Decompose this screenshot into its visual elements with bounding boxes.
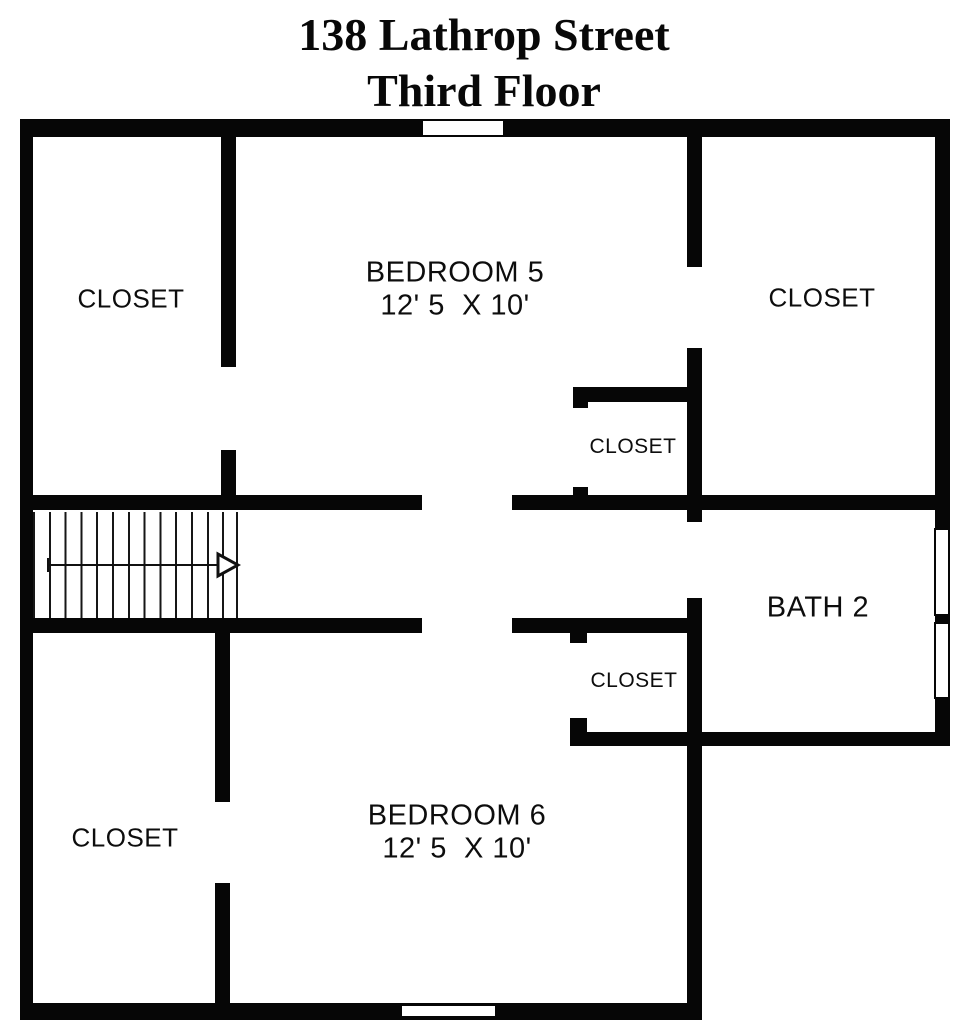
window-marker-top (421, 119, 505, 137)
room-label-closet-mid-lower: CLOSET (590, 669, 677, 693)
room-label-bedroom5: BEDROOM 5 (366, 257, 545, 290)
floor-plan: 138 Lathrop Street Third Floor CLOSET BE… (0, 0, 968, 1030)
room-label-bath2: BATH 2 (767, 592, 869, 625)
wall-divider-mid (687, 348, 702, 495)
window-right-lower (934, 622, 950, 699)
wall-closet-upper-left-a (221, 137, 236, 367)
wall-divider-upper (687, 137, 702, 267)
wall-bath-bottom (570, 732, 950, 746)
wall-outer-left (20, 119, 33, 1020)
room-label-bedroom6: BEDROOM 6 (368, 800, 547, 833)
wall-closet-mid-lower-stub-b (570, 718, 587, 732)
room-dims-bedroom6: 12' 5 X 10' (382, 833, 531, 866)
wall-outer-bottom (20, 1003, 702, 1020)
plan-title-line2: Third Floor (0, 68, 968, 114)
stairs-direction-arrow-head (215, 551, 241, 579)
wall-hall-top-right (512, 495, 950, 510)
room-label-closet-upper-right: CLOSET (768, 283, 875, 314)
wall-closet-mid-upper-stub-a (573, 387, 588, 408)
room-dims-bedroom5: 12' 5 X 10' (380, 290, 529, 323)
wall-hall-bottom-right (512, 618, 687, 633)
wall-divider-lower (687, 598, 702, 1003)
wall-hall-top-left (20, 495, 422, 510)
wall-closet-mid-upper-stub-b (573, 487, 588, 495)
window-marker-bottom (400, 1004, 497, 1018)
wall-closet-upper-left-b (221, 450, 236, 495)
wall-closet-mid-upper-top (573, 387, 687, 402)
wall-closet-mid-lower-stub-a (570, 633, 587, 643)
wall-closet-lower-left-a (215, 633, 230, 802)
wall-divider-stub (687, 510, 702, 522)
window-right-upper (934, 528, 950, 616)
room-label-closet-upper-left: CLOSET (77, 284, 184, 315)
stairs-direction-arrow-shaft (48, 564, 218, 566)
wall-closet-lower-left-b (215, 883, 230, 1003)
wall-hall-bottom-left (20, 618, 422, 633)
plan-title-line1: 138 Lathrop Street (0, 12, 968, 58)
stairs-direction-arrow-tail (47, 558, 49, 572)
room-label-closet-lower-left: CLOSET (71, 823, 178, 854)
room-label-closet-mid-upper: CLOSET (589, 435, 676, 459)
